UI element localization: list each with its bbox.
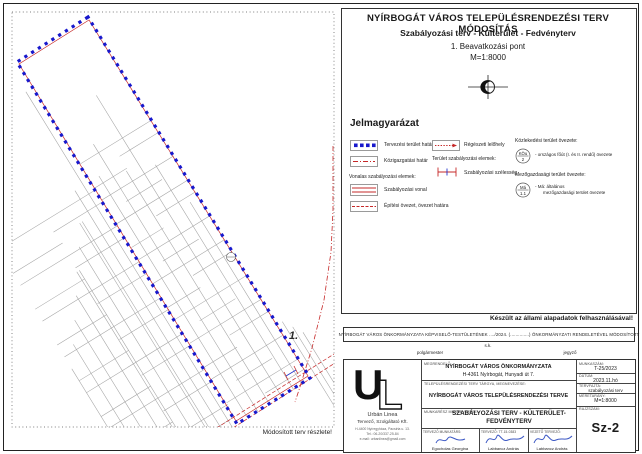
company-logo: U L: [347, 361, 419, 411]
legend-desc-agri-2: mezőgazdasági terület övezete: [543, 190, 605, 195]
part-name-2: FEDVÉNYTERV: [442, 418, 576, 425]
map-zone-symbol: [227, 253, 236, 262]
map-intervention-label: 1.: [289, 330, 298, 342]
company-name: Urbán Linea: [344, 412, 421, 418]
plan-label: TELEPÜLÉSRENDEZÉSI TERV TÁRGYA, MEGNEVEZ…: [424, 382, 526, 386]
legend-swatch-zone-boundary: [350, 201, 378, 212]
modification-text: NYÍRBOGÁT VÁROS ÖNKORMÁNYZATA KÉPVISELŐ-…: [339, 332, 640, 337]
state-data-statement: Készült az állami alapadatok felhasználá…: [400, 315, 633, 322]
svg-text:Má: Má: [520, 185, 527, 190]
part-name-1: SZABÁLYOZÁSI TERV - KÜLTERÜLET-: [442, 410, 576, 417]
legend-symbol-transport-zone: KÖu 2: [515, 148, 531, 164]
plantype-value: szabályozási terv: [576, 388, 635, 393]
map-boundary-redline: [19, 20, 308, 421]
sheet-subtitle: Szabályozási terv - Külterület - Fedvény…: [341, 28, 635, 38]
sig2-signature: [484, 431, 526, 446]
north-arrow-icon: [466, 74, 510, 100]
scale-title: M=1:8000: [341, 53, 635, 62]
legend-title: Jelmagyarázat: [350, 118, 419, 129]
company-phone: Tel.: 06-20/337-25-84: [344, 432, 421, 436]
worknum-label: MUNKASZÁM:: [579, 362, 604, 366]
sig3-name: Labbancz András: [528, 446, 576, 451]
svg-text:KÖu: KÖu: [519, 151, 528, 156]
legend-label-admin-boundary: Közigazgatási határ: [384, 158, 428, 164]
legend-header-agri: Mezőgazdasági terület övezete:: [515, 172, 586, 178]
scale-value: M=1:8000: [576, 398, 635, 404]
svg-text:1.1: 1.1: [520, 191, 527, 196]
worknum-value: T-25/2023: [576, 366, 635, 372]
legend-swatch-regulation-line: [350, 184, 378, 196]
legend-label-planning-area: Tervezési terület határa: [384, 142, 436, 148]
sig3-signature: [532, 431, 574, 446]
legend-label-archaeology: Régészeti lelőhely: [464, 142, 505, 148]
map-width-marker: [284, 366, 298, 380]
drawnum-value: Sz-2: [576, 420, 635, 435]
plan-name: NYÍRBOGÁT VÁROS TELEPÜLÉSRENDEZÉSI TERVE: [421, 393, 576, 399]
legend-label-regulation-line: Szabályozási vonal: [384, 187, 427, 193]
legend-label-regulation-width: Szabályozási szélesség: [464, 170, 517, 176]
intervention-point-title: 1. Beavatkozási pont: [341, 42, 635, 51]
company-name-2: Tervező, Szolgáltató Kft.: [344, 419, 421, 424]
drawnum-label: RAJZSZÁM:: [579, 407, 600, 411]
legend-header-area: Terület szabályozási elemek:: [432, 156, 496, 162]
client-name: NYÍRBOGÁT VÁROS ÖNKORMÁNYZATA: [421, 364, 576, 370]
sig2-name: Labbancz András: [479, 446, 528, 451]
map-dotted-frame: [12, 12, 334, 427]
legend-swatch-planning-area: [350, 140, 378, 151]
company-address: H-4400 Nyíregyháza, Pacsirta u. 13.: [344, 427, 421, 431]
modification-bar: NYÍRBOGÁT VÁROS ÖNKORMÁNYZATA KÉPVISELŐ-…: [343, 327, 635, 342]
map-planning-boundary: [17, 17, 310, 424]
legend-header-transport: Közlekedési terület övezete:: [515, 138, 578, 144]
sk-label: s.k.: [343, 343, 633, 348]
plan-sheet: 1. Módosított terv részlete! NYÍRBOGÁT V…: [0, 0, 642, 454]
legend-label-zone-boundary: Építési övezet, övezet határa: [384, 203, 448, 209]
map-regulation-line-1: [196, 354, 334, 441]
title-block: U L Urbán Linea Tervező, Szolgáltató Kft…: [343, 359, 636, 453]
mayor-label: polgármester: [390, 350, 470, 355]
map-footnote: Módosított terv részlete!: [180, 429, 332, 436]
legend-symbol-regulation-width: [436, 166, 458, 178]
legend-swatch-archaeology: [432, 140, 460, 151]
client-address: H-4361 Nyírbogát, Hunyadi út 7.: [421, 372, 576, 378]
notary-label: jegyző: [535, 350, 605, 355]
company-email: e-mail: urbanlinea@gmail.com: [344, 437, 421, 441]
legend-symbol-agri-zone: Má 1.1: [515, 182, 531, 198]
map-parcel-lines: [0, 92, 345, 454]
sig1-name: Egocholas Georgina: [421, 446, 479, 451]
legend-desc-agri-1: - Má: általános: [535, 184, 565, 189]
legend-header-linear: Vonalas szabályozási elemek:: [349, 174, 416, 180]
legend-swatch-admin-boundary: [350, 156, 378, 167]
legend-desc-transport: - országos főút (I. és II. rendű) övezet…: [535, 152, 612, 157]
date-value: 2023.11.hó: [576, 378, 635, 384]
svg-text:L: L: [377, 371, 403, 411]
sig1-signature: [432, 432, 470, 446]
